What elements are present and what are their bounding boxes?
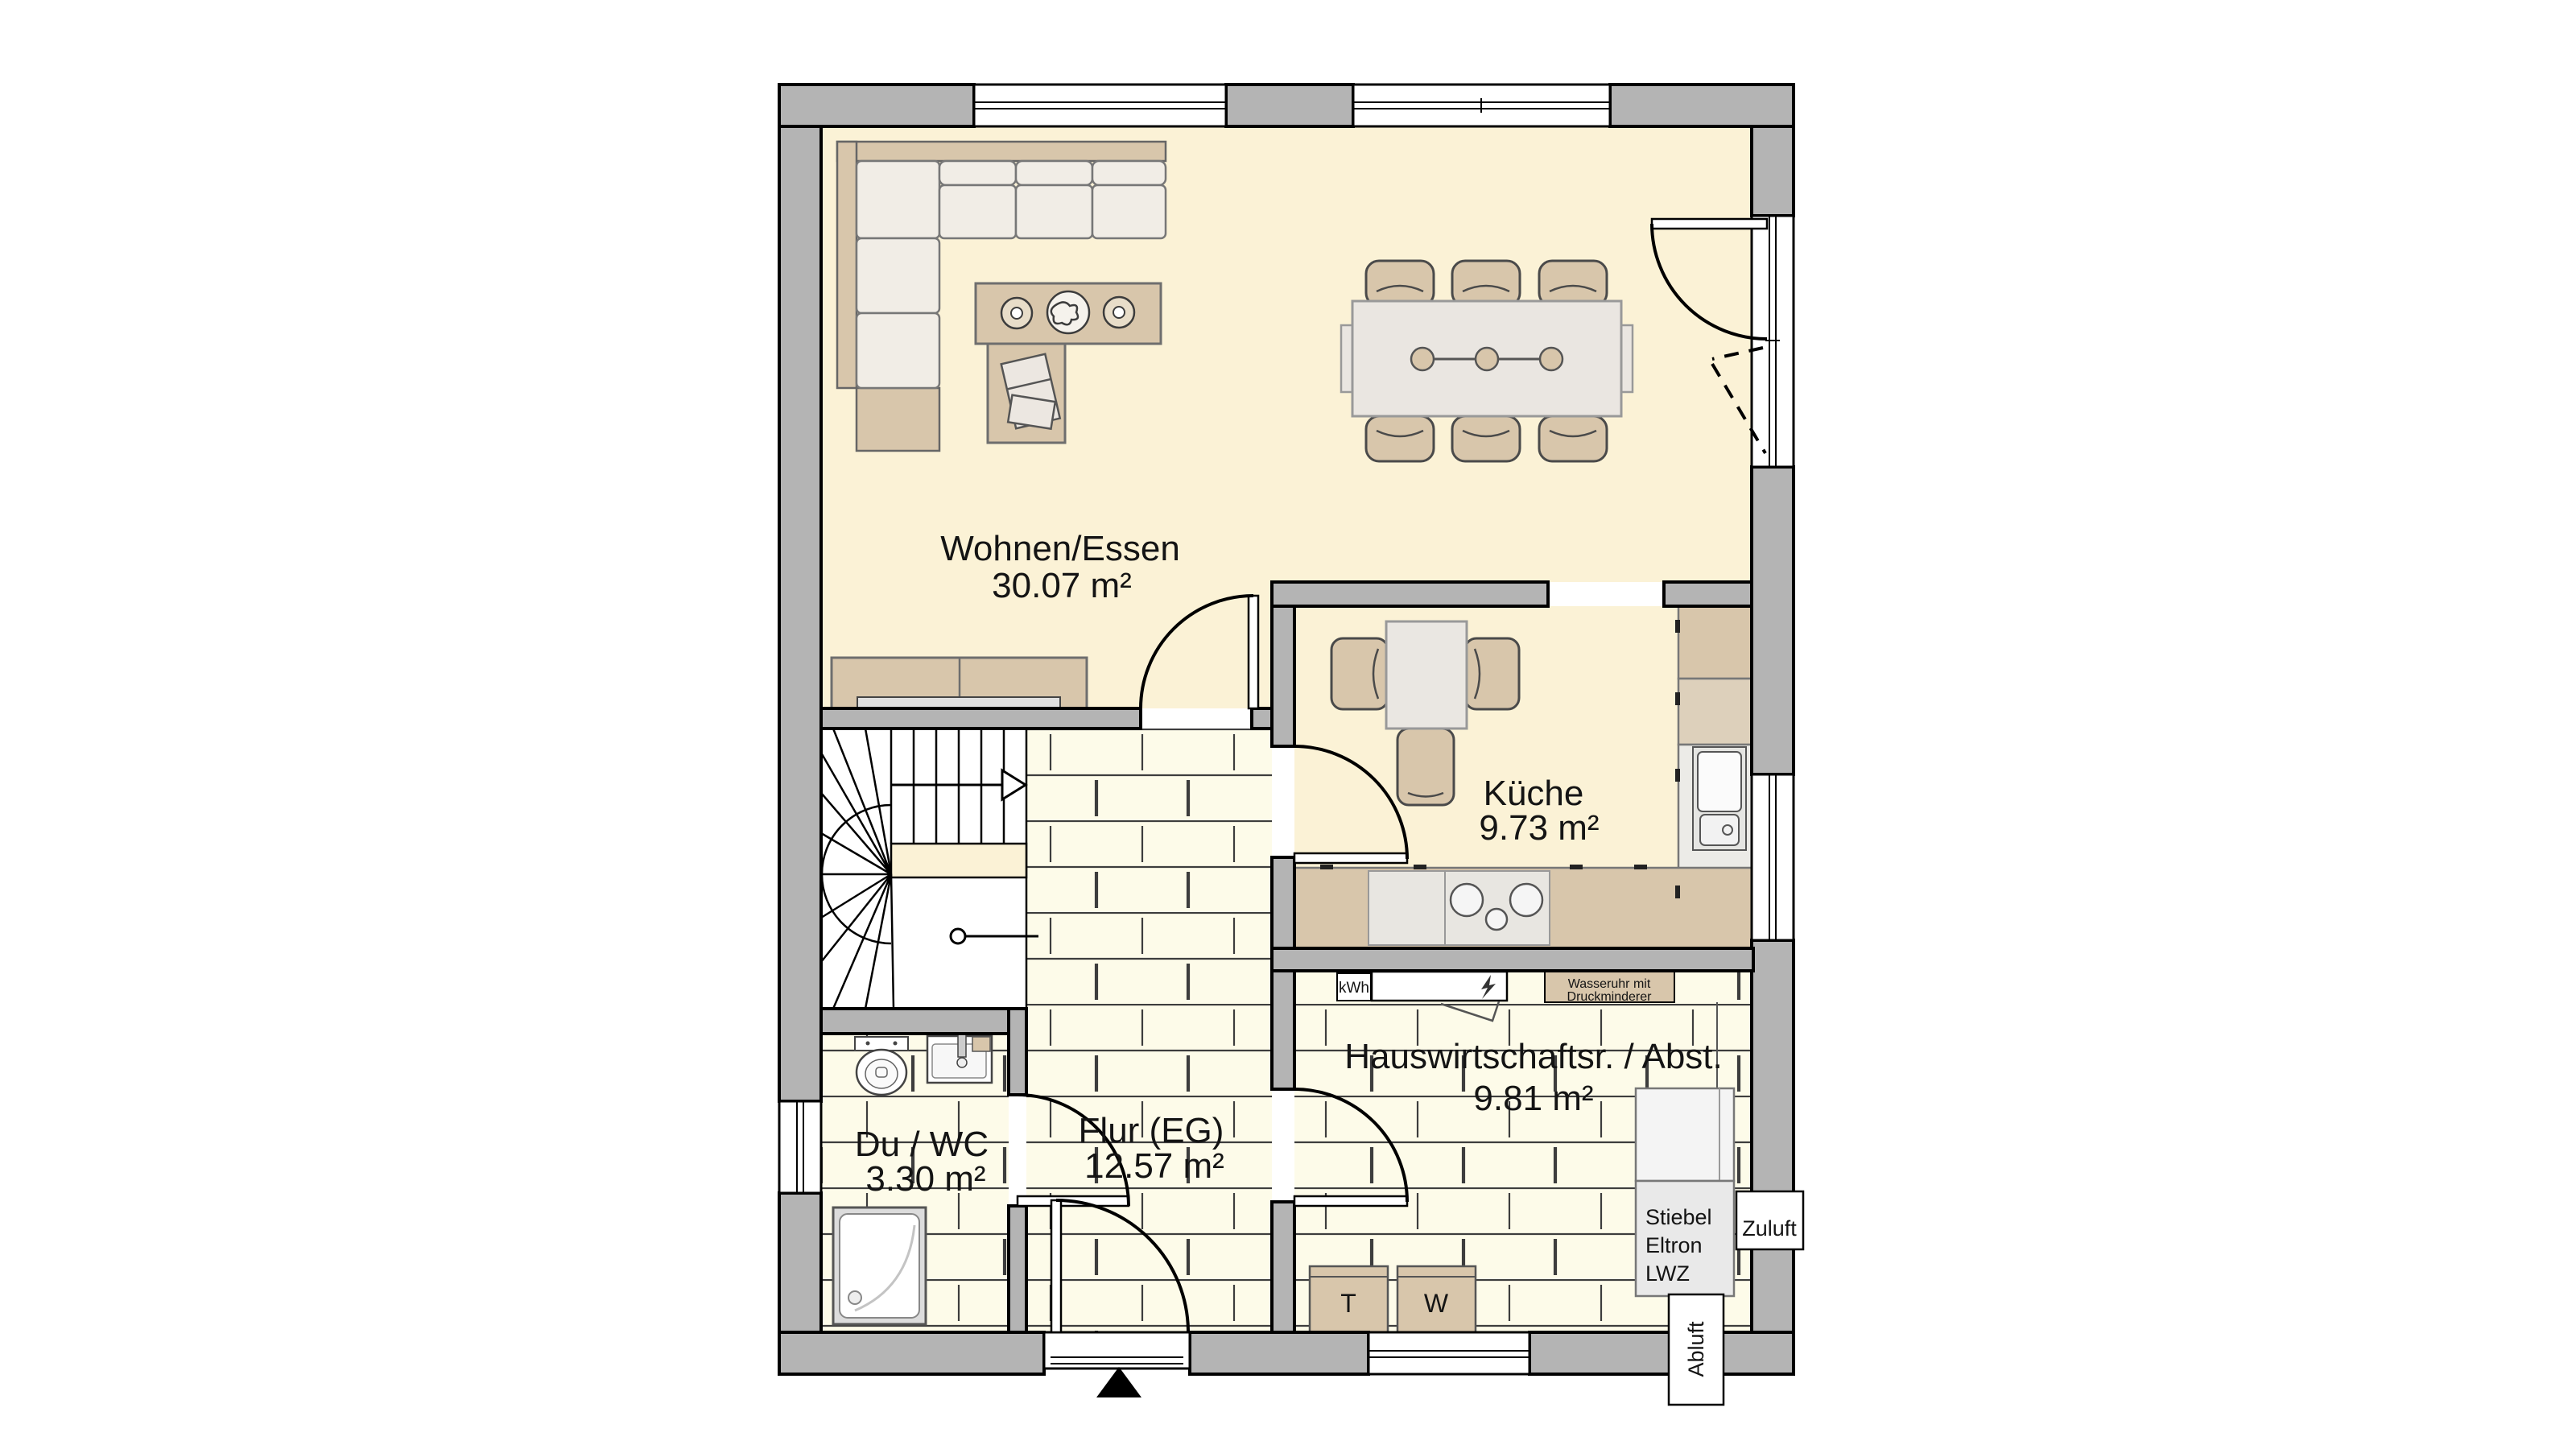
entrance-arrow-icon: [1096, 1367, 1141, 1397]
wall-bath-east: [1009, 1206, 1026, 1332]
room-label-bath: Du / WC: [855, 1125, 989, 1164]
wall-outer: [779, 126, 821, 1101]
shower: [833, 1207, 926, 1324]
label-heat-pump-1: Stiebel: [1645, 1205, 1712, 1229]
dining-chair: [1366, 261, 1434, 306]
room-label-hall: Flur (EG): [1079, 1111, 1224, 1150]
room-area-kitchen: 9.73 m²: [1479, 808, 1599, 848]
stairs: [821, 729, 1038, 1009]
threshold-living-hall: [1141, 708, 1252, 729]
room-area-hall: 12.57 m²: [1084, 1146, 1224, 1186]
wall-kitchen-utility: [1272, 948, 1753, 971]
terrace-door-window: [1752, 216, 1794, 467]
sofa-corner-cushion: [857, 161, 939, 238]
window-utility: [1368, 1332, 1529, 1374]
floor-plan: Wohnen/Essen 30.07 m² Küche 9.73 m² Flur…: [0, 0, 2576, 1449]
wall-kitchen-north: [1664, 582, 1752, 606]
label-water-meter-2: Druckminderer: [1567, 990, 1653, 1004]
label-heat-pump-2: Eltron: [1645, 1233, 1703, 1257]
label-supply-air: Zuluft: [1742, 1216, 1797, 1241]
wall-utility-west: [1272, 1202, 1294, 1332]
room-area-living: 30.07 m²: [992, 566, 1132, 605]
kitchen-chair: [1331, 638, 1388, 709]
wall-outer: [1752, 940, 1794, 1332]
dining-chair: [1452, 416, 1520, 461]
wall-stairs-south: [821, 1009, 1026, 1034]
wall-kitchen-west: [1272, 857, 1294, 948]
window-bath: [779, 1101, 821, 1193]
window-top-left: [974, 85, 1226, 126]
label-electric-meter: kWh: [1339, 980, 1369, 997]
window-top-right: [1353, 85, 1610, 126]
wall-utility-west: [1272, 971, 1294, 1089]
wall-outer: [1752, 467, 1794, 774]
room-label-living: Wohnen/Essen: [940, 529, 1180, 568]
wall-outer: [779, 1332, 1044, 1374]
wall-outer: [1529, 1332, 1794, 1374]
pass-through-opening: [1548, 582, 1664, 606]
dining-chair: [1452, 261, 1520, 306]
wall-outer: [779, 1193, 821, 1332]
cooktop: [1445, 871, 1550, 945]
dining-set: [1341, 261, 1633, 461]
bath-sink: [927, 1034, 992, 1083]
plant-icon: [1047, 291, 1089, 333]
wall-bath-east: [1009, 1009, 1026, 1095]
wall-outer: [779, 85, 974, 126]
tv: [857, 697, 1060, 708]
label-dryer: T: [1340, 1289, 1356, 1318]
drain-icon: [848, 1291, 861, 1304]
threshold-kitchen: [1272, 746, 1294, 857]
sofa-ottoman: [857, 388, 939, 451]
threshold-bath: [1009, 1095, 1026, 1206]
threshold-utility: [1272, 1089, 1294, 1202]
label-washer: W: [1424, 1289, 1449, 1318]
room-area-bath: 3.30 m²: [865, 1159, 985, 1199]
wall-outer: [1226, 85, 1353, 126]
room-area-utility: 9.81 m²: [1473, 1079, 1593, 1118]
stairs-landing: [891, 844, 1026, 877]
hall-floor: [1026, 729, 1272, 1332]
window-kitchen: [1752, 774, 1794, 940]
tall-cabinet: [1678, 679, 1753, 745]
wall-outer: [1610, 85, 1794, 126]
dishwasher: [1368, 871, 1445, 945]
room-label-utility: Hauswirtschaftsr. / Abst.: [1344, 1037, 1723, 1076]
wall-outer: [1190, 1332, 1368, 1374]
toilet: [855, 1037, 908, 1095]
kitchen-chair: [1397, 729, 1454, 805]
room-label-kitchen: Küche: [1484, 774, 1584, 813]
dining-chair: [1539, 416, 1607, 461]
kitchen-sink: [1693, 747, 1746, 850]
floor-plan-page: Wohnen/Essen 30.07 m² Küche 9.73 m² Flur…: [0, 0, 2576, 1449]
label-heat-pump-3: LWZ: [1645, 1261, 1690, 1286]
wall-outer: [1752, 126, 1794, 216]
faucet-icon: [958, 1034, 966, 1057]
dining-chair: [1539, 261, 1607, 306]
label-exhaust-air: Abluft: [1684, 1321, 1708, 1377]
tall-cabinet: [1678, 606, 1753, 679]
sideboard-tv: [832, 658, 1087, 710]
kitchen-table: [1386, 621, 1467, 729]
wall-kitchen-north: [1272, 582, 1548, 606]
dining-chair: [1366, 416, 1434, 461]
kitchen-chair: [1465, 638, 1519, 709]
wall-living-south: [821, 708, 1141, 729]
label-water-meter-1: Wasseruhr mit: [1568, 977, 1651, 991]
